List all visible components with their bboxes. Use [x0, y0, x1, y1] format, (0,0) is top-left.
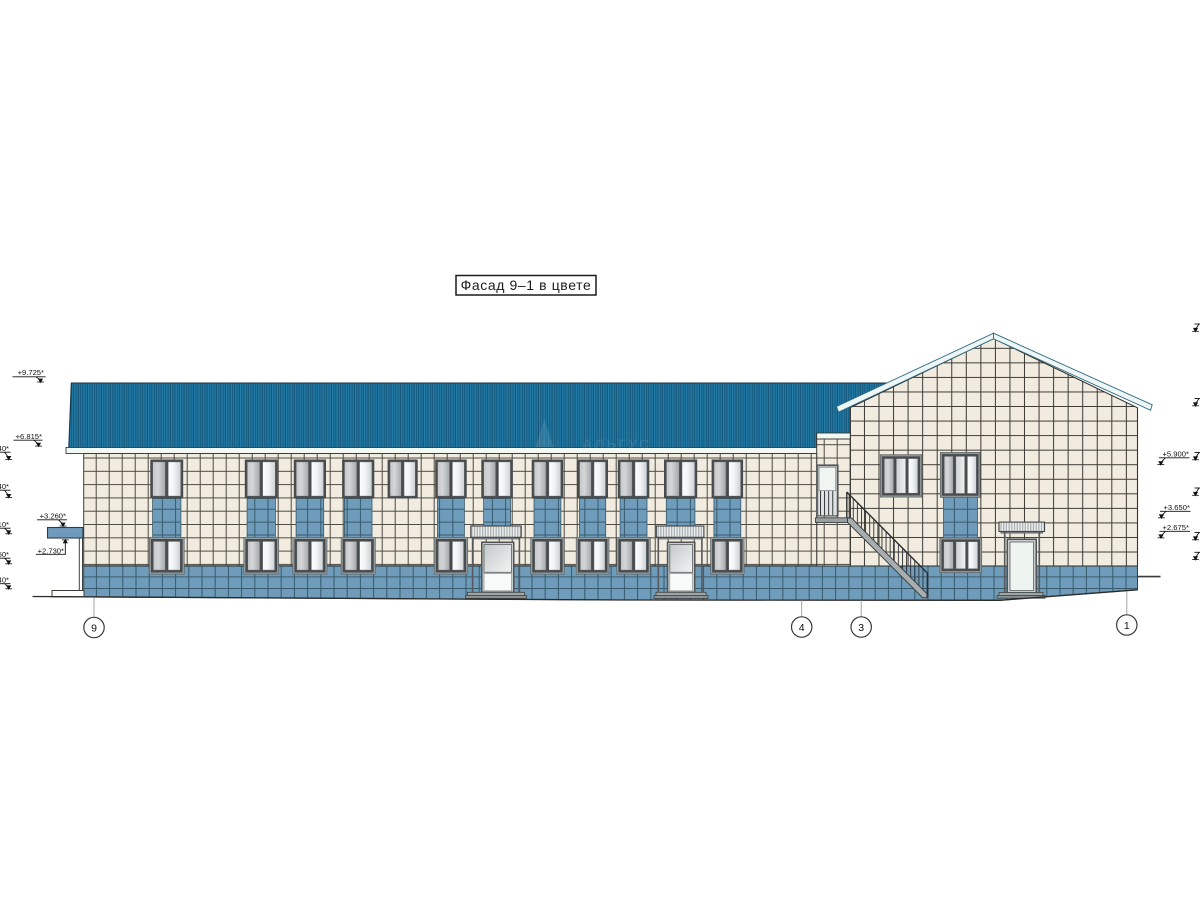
svg-text:10*: 10*	[0, 520, 9, 529]
svg-text:АЛЬГУС: АЛЬГУС	[582, 436, 651, 452]
svg-text:+3.650*: +3.650*	[1164, 503, 1190, 512]
svg-text:+6.815*: +6.815*	[16, 432, 42, 441]
svg-text:40*: 40*	[0, 444, 9, 453]
svg-text:3: 3	[858, 622, 864, 634]
svg-text:9: 9	[91, 622, 97, 634]
svg-text:ГРУППА КОМПАНИЙ: ГРУППА КОМПАНИЙ	[575, 461, 687, 472]
svg-text:Фасад 9–1 в цвете: Фасад 9–1 в цвете	[461, 277, 592, 293]
svg-text:40*: 40*	[0, 482, 9, 491]
svg-text:+3.260*: +3.260*	[40, 512, 66, 521]
svg-text:+2.675*: +2.675*	[1163, 523, 1189, 532]
svg-text:4: 4	[799, 622, 805, 634]
svg-text:+9.725*: +9.725*	[18, 368, 44, 377]
svg-text:40*: 40*	[0, 576, 9, 585]
svg-text:50*: 50*	[0, 550, 9, 559]
svg-text:1: 1	[1124, 620, 1130, 632]
svg-text:+5.900*: +5.900*	[1163, 449, 1189, 458]
